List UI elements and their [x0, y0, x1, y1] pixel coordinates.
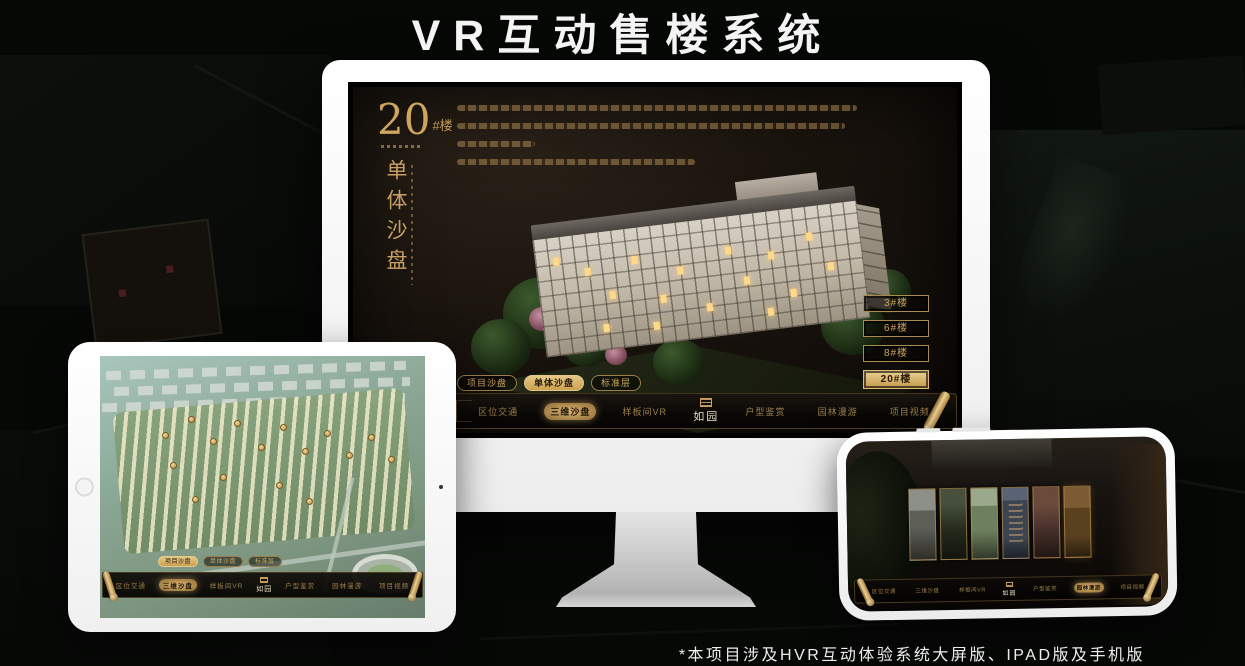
sandbox-tab-group: 项目沙盘 单体沙盘 标准层 — [457, 375, 641, 391]
tab-single-sandbox[interactable]: 单体沙盘 — [524, 375, 584, 391]
building-marker[interactable] — [368, 434, 375, 441]
scene-card-lounge[interactable] — [1063, 486, 1091, 558]
tablet-navbar: 区位交通 三维沙盘 样板间VR 如园 户型鉴赏 园林漫游 项目视频 — [102, 572, 423, 598]
tab-standard-floor[interactable]: 标准层 — [248, 556, 282, 567]
navbar-bracket-ornament — [456, 400, 472, 422]
building-marker[interactable] — [192, 496, 199, 503]
lit-window — [653, 321, 660, 330]
building-marker[interactable] — [302, 448, 309, 455]
lit-window — [790, 289, 797, 298]
tab-project-sandbox[interactable]: 项目沙盘 — [457, 375, 517, 391]
home-button[interactable] — [75, 478, 94, 497]
scene-card-garden[interactable] — [970, 487, 998, 559]
mode-title-vertical: 单体沙盘 — [381, 159, 411, 279]
description-line — [457, 159, 695, 165]
phone-device: 区位交通 三维沙盘 样板间VR 如园 户型鉴赏 园林漫游 项目视频 — [836, 427, 1177, 621]
floor-button-20[interactable]: 20#楼 — [863, 370, 929, 389]
lit-window — [768, 251, 775, 260]
building-marker[interactable] — [188, 416, 195, 423]
building-marker[interactable] — [258, 444, 265, 451]
nav-item-project-video[interactable]: 项目视频 — [375, 579, 413, 591]
page-title: VR互动售楼系统 — [0, 1, 1245, 63]
building-marker[interactable] — [234, 420, 241, 427]
scene-card-facade[interactable] — [1001, 487, 1029, 559]
footnote-text: *本项目涉及HVR互动体验系统大屏版、IPAD版及手机版 — [679, 641, 1145, 665]
main-navbar: 区位交通 三维沙盘 样板间VR 如园 户型鉴赏 园林漫游 项目视频 — [451, 393, 957, 429]
mode-title-rule — [411, 165, 413, 285]
lit-window — [660, 294, 667, 303]
description-text-blurred — [457, 105, 877, 177]
building-marker[interactable] — [162, 432, 169, 439]
lit-window — [706, 303, 713, 312]
bg-plaque-seal — [166, 265, 174, 273]
tab-single-sandbox[interactable]: 单体沙盘 — [203, 556, 243, 567]
building-unit: #楼 — [432, 115, 452, 134]
brand-logo-text: 如园 — [693, 408, 719, 424]
lit-window — [677, 266, 684, 275]
brand-logo-text: 如园 — [256, 584, 272, 594]
lit-window — [725, 246, 732, 255]
lit-window — [553, 257, 560, 266]
brand-logo: 如园 — [1002, 581, 1016, 596]
scene-card-interior[interactable] — [939, 488, 967, 560]
description-line — [457, 123, 845, 129]
nav-item-garden-roam[interactable]: 园林漫游 — [328, 579, 366, 591]
tablet-device: 项目沙盘 单体沙盘 标准层 区位交通 三维沙盘 样板间VR 如园 户型鉴赏 园林… — [68, 342, 456, 632]
nav-item-3d-sandbox[interactable]: 三维沙盘 — [912, 585, 942, 596]
nav-item-showroom-vr[interactable]: 样板间VR — [956, 584, 989, 595]
description-line — [457, 141, 535, 147]
bg-road-line — [480, 623, 900, 641]
building-marker[interactable] — [280, 424, 287, 431]
building-marker[interactable] — [276, 482, 283, 489]
aerial-building-row — [106, 361, 406, 380]
volume-button[interactable] — [952, 427, 990, 432]
lit-window — [584, 268, 591, 277]
scene-card-courtyard[interactable] — [908, 488, 936, 560]
headline-subtext-blurred — [381, 145, 423, 148]
tab-standard-floor[interactable]: 标准层 — [591, 375, 641, 391]
building-marker[interactable] — [210, 438, 217, 445]
nav-item-floorplans[interactable]: 户型鉴赏 — [1030, 583, 1060, 594]
floor-button-3[interactable]: 3#楼 — [863, 295, 929, 312]
nav-item-garden-roam[interactable]: 园林漫游 — [1074, 582, 1104, 593]
nav-item-3d-sandbox[interactable]: 三维沙盘 — [159, 579, 197, 591]
nav-item-showroom-vr[interactable]: 样板间VR — [617, 403, 674, 420]
seal-logo-icon — [700, 398, 712, 407]
lit-window — [806, 232, 813, 241]
volume-button[interactable] — [916, 428, 940, 432]
tab-project-sandbox[interactable]: 项目沙盘 — [158, 556, 198, 567]
lit-window — [827, 262, 834, 271]
floor-button-group: 3#楼 6#楼 8#楼 20#楼 — [863, 295, 929, 389]
bg-building-block — [1098, 55, 1245, 135]
lit-window — [631, 256, 638, 265]
bg-plaque-frame — [81, 219, 222, 350]
phone-screen-panorama: 区位交通 三维沙盘 样板间VR 如园 户型鉴赏 园林漫游 项目视频 — [846, 436, 1169, 612]
nav-item-location[interactable]: 区位交通 — [112, 579, 150, 591]
ceiling-beam — [932, 438, 1053, 470]
lit-window — [603, 324, 610, 333]
scene-card-building[interactable] — [1032, 486, 1060, 558]
nav-item-garden-roam[interactable]: 园林漫游 — [812, 403, 864, 420]
building-marker[interactable] — [346, 452, 353, 459]
tablet-tab-group: 项目沙盘 单体沙盘 标准层 — [158, 556, 282, 567]
brand-logo: 如园 — [256, 577, 272, 594]
building-marker[interactable] — [306, 498, 313, 505]
brand-logo: 如园 — [693, 398, 719, 424]
tablet-screen-aerial-view: 项目沙盘 单体沙盘 标准层 区位交通 三维沙盘 样板间VR 如园 户型鉴赏 园林… — [100, 356, 425, 618]
lit-window — [743, 276, 750, 285]
description-line — [457, 105, 857, 111]
floor-button-8[interactable]: 8#楼 — [863, 345, 929, 362]
aerial-community-area — [112, 388, 415, 555]
nav-item-location[interactable]: 区位交通 — [869, 586, 899, 597]
seal-logo-icon — [1006, 581, 1013, 586]
building-number: 20 — [377, 99, 430, 141]
building-marker[interactable] — [388, 456, 395, 463]
nav-item-location[interactable]: 区位交通 — [472, 403, 524, 420]
camera-icon — [439, 485, 443, 489]
brand-logo-text: 如园 — [1002, 587, 1016, 596]
building-marker[interactable] — [170, 462, 177, 469]
building-marker[interactable] — [220, 474, 227, 481]
nav-item-showroom-vr[interactable]: 样板间VR — [206, 579, 248, 591]
nav-item-floorplans[interactable]: 户型鉴赏 — [739, 403, 791, 420]
lit-window — [609, 291, 616, 300]
nav-item-3d-sandbox[interactable]: 三维沙盘 — [544, 403, 596, 420]
bg-plaque-seal — [118, 289, 126, 297]
floor-button-6[interactable]: 6#楼 — [863, 320, 929, 337]
nav-item-floorplans[interactable]: 户型鉴赏 — [281, 579, 319, 591]
building-marker[interactable] — [324, 430, 331, 437]
building-headline: 20#楼 — [377, 99, 453, 148]
nav-item-project-video[interactable]: 项目视频 — [1117, 582, 1147, 593]
seal-logo-icon — [260, 577, 268, 583]
lit-window — [767, 307, 774, 316]
